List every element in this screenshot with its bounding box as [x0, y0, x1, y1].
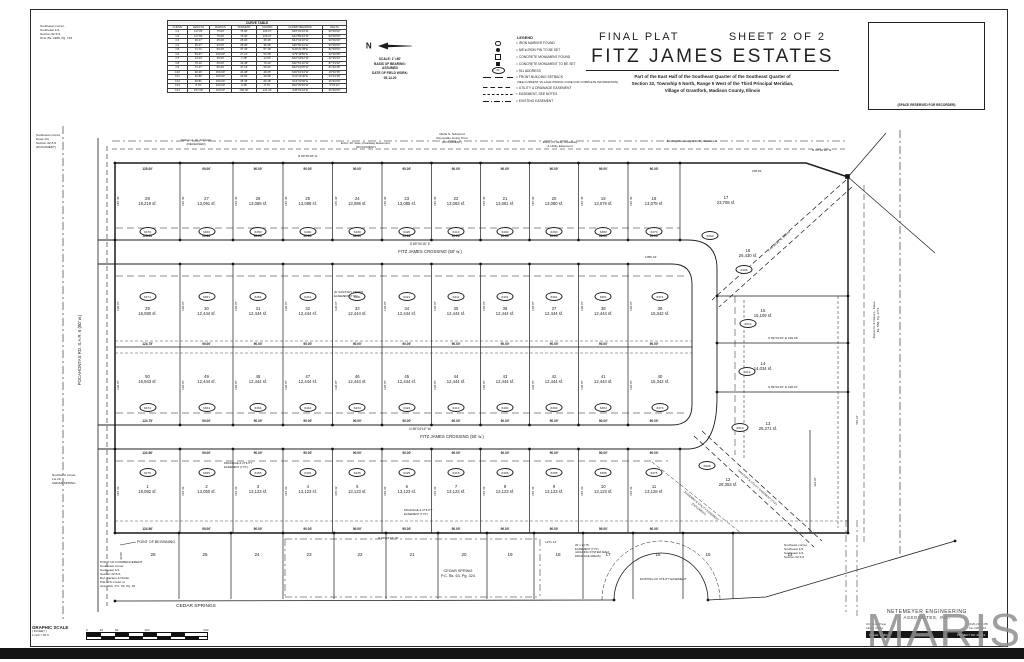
plat-description-line: Part of the East Half of the Southeast Q…: [585, 74, 840, 81]
plat-description-line: Section 32, Township 5 North, Range 5 We…: [585, 81, 840, 88]
sheet-border: [30, 9, 1008, 647]
scale-note-line: 05-14-20: [358, 76, 422, 81]
legend-item-label: = FRONT BUILDING SETBACK: [516, 75, 563, 79]
scale-tick: 120: [144, 628, 149, 632]
plat-sheet: 2818,219 sf.64702713,091 sf.64602613,089…: [0, 0, 1024, 662]
cedar-spring-plat-note: CEDAR SPRING P.C. Bk. 63, Pg. 324: [441, 569, 475, 579]
north-label: N: [366, 41, 372, 50]
recorder-box-label: (SPACE RESERVED FOR RECORDER): [898, 103, 956, 107]
square-filled-icon: [496, 62, 500, 66]
curve-table-row: C14157.08'100.00'100.00'141.42'S45°04'16…: [168, 88, 347, 92]
scale-tick: 0: [86, 628, 88, 632]
plat-description-line: Village of Grantfork, Madison County, Il…: [585, 88, 840, 95]
north-arrow-block: N SCALE: 1"=60'BASIS OF BEARING:ASSUMEDD…: [358, 37, 422, 80]
final-plat-label: FINAL PLAT: [599, 31, 680, 43]
legend-item-label: = CONCRETE MONUMENT TO BE SET: [516, 62, 576, 66]
legend-item: = EXISTING EASEMENT: [483, 98, 653, 105]
title-block: FINAL PLAT SHEET 2 OF 2 FITZ JAMES ESTAT…: [585, 31, 840, 95]
legend-item-label: = IRON MARKER FOUND: [516, 41, 555, 45]
circle-filled-icon: [496, 48, 500, 52]
curve-table: CURVE TABLE CURVELENGTHRADIUSTANGENTCHOR…: [167, 20, 347, 93]
recorder-box: (SPACE RESERVED FOR RECORDER): [868, 22, 985, 110]
legend-item-label: = EXISTING EASEMENT: [516, 99, 553, 103]
square-open-icon: [495, 54, 501, 60]
sheet-number: SHEET 2 OF 2: [729, 31, 826, 43]
legend-item-label: = CONCRETE MONUMENT FOUND: [516, 55, 570, 59]
line-longdash-icon: [483, 77, 513, 78]
north-arrow-icon: [376, 42, 414, 50]
line-shortdash-icon: [483, 94, 513, 95]
legend-item-label: = 911 ADDRESS: [516, 69, 541, 73]
scale-notes: SCALE: 1"=60'BASIS OF BEARING:ASSUMEDDAT…: [358, 57, 422, 80]
scale-tick: 240: [203, 628, 208, 632]
legend-item-label: = UTILITY & DRAINAGE EASEMENT: [516, 86, 571, 90]
graphic-scale-ratio: 1 inch = 60 ft.: [32, 634, 82, 638]
line-dashdot-icon: [483, 101, 513, 102]
scale-tick: 60: [115, 628, 118, 632]
graphic-scale: GRAPHIC SCALE ( IN FEET ) 1 inch = 60 ft…: [32, 625, 208, 640]
circle-open-icon: [495, 41, 501, 47]
line-dash-icon: [483, 87, 513, 88]
plat-title: FITZ JAMES ESTATES: [586, 45, 839, 71]
legend-item-label: = EASEMENT, SEE NOTES: [516, 92, 557, 96]
scale-tick: 30: [100, 628, 103, 632]
maris-watermark: MARIS: [866, 603, 1022, 657]
oval-icon: ##: [492, 67, 505, 74]
legend-item-label: = 5/8"ø IRON PIN TO BE SET: [516, 48, 560, 52]
